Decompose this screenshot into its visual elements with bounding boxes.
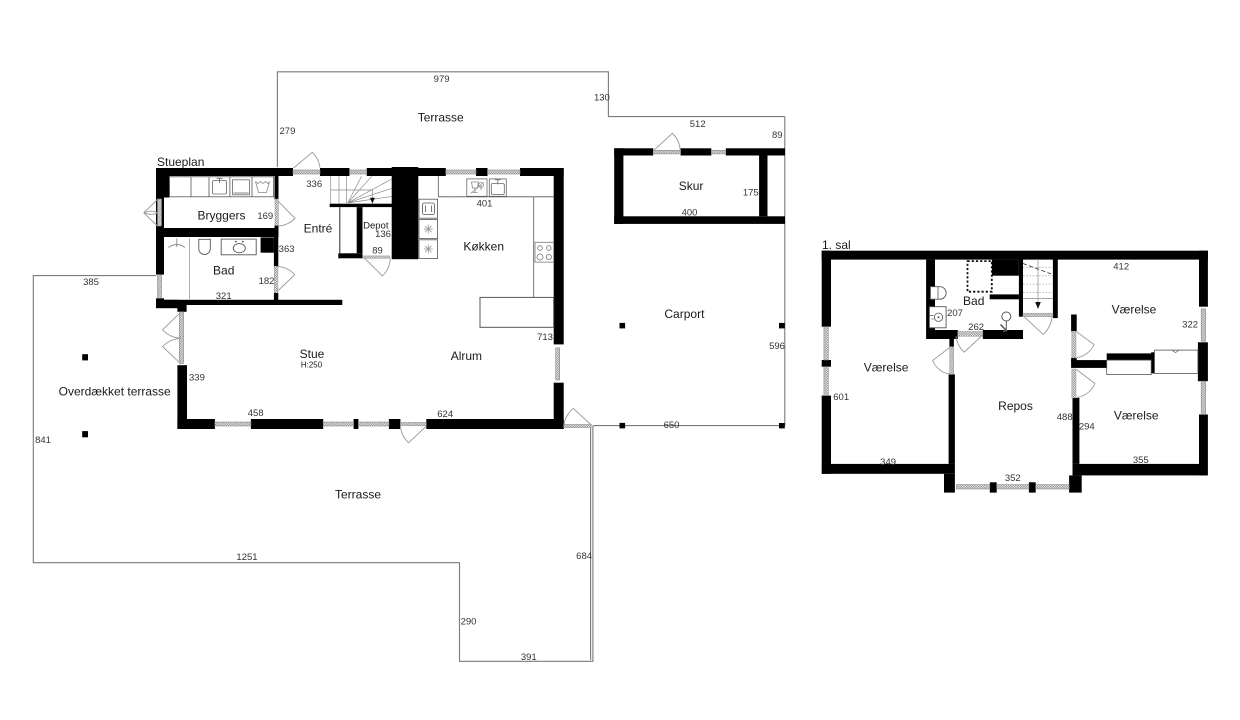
svg-text:290: 290 bbox=[461, 617, 477, 628]
svg-text:1. sal: 1. sal bbox=[822, 238, 851, 252]
svg-text:488: 488 bbox=[1057, 412, 1073, 423]
svg-text:713: 713 bbox=[537, 332, 553, 343]
svg-text:Køkken: Køkken bbox=[463, 240, 504, 254]
svg-text:Bryggers: Bryggers bbox=[197, 209, 245, 223]
svg-text:339: 339 bbox=[189, 373, 205, 384]
svg-text:Terrasse: Terrasse bbox=[335, 488, 381, 502]
svg-text:385: 385 bbox=[83, 277, 99, 288]
svg-text:Værelse: Værelse bbox=[864, 361, 909, 375]
svg-text:279: 279 bbox=[280, 126, 296, 137]
svg-text:89: 89 bbox=[772, 130, 783, 141]
svg-text:458: 458 bbox=[248, 408, 264, 419]
svg-text:596: 596 bbox=[769, 341, 785, 352]
svg-text:363: 363 bbox=[279, 244, 295, 255]
svg-text:Repos: Repos bbox=[998, 399, 1033, 413]
svg-text:130: 130 bbox=[594, 93, 610, 104]
svg-text:262: 262 bbox=[968, 322, 984, 333]
svg-text:400: 400 bbox=[682, 208, 698, 219]
svg-text:601: 601 bbox=[833, 392, 849, 403]
svg-text:175: 175 bbox=[743, 188, 759, 199]
svg-text:349: 349 bbox=[880, 457, 896, 468]
svg-text:Entré: Entré bbox=[304, 222, 333, 236]
svg-text:294: 294 bbox=[1079, 422, 1095, 433]
svg-text:Værelse: Værelse bbox=[1114, 408, 1159, 422]
svg-text:136: 136 bbox=[375, 229, 391, 240]
svg-text:Terrasse: Terrasse bbox=[418, 111, 464, 125]
svg-text:Bad: Bad bbox=[213, 264, 234, 278]
svg-text:650: 650 bbox=[664, 420, 680, 431]
svg-text:355: 355 bbox=[1133, 455, 1149, 466]
svg-text:684: 684 bbox=[576, 551, 592, 562]
svg-text:Stue: Stue bbox=[300, 347, 325, 361]
svg-text:401: 401 bbox=[477, 199, 493, 210]
svg-text:Bad: Bad bbox=[963, 294, 984, 308]
svg-text:H:250: H:250 bbox=[301, 361, 323, 370]
svg-text:182: 182 bbox=[259, 276, 275, 287]
svg-text:Carport: Carport bbox=[664, 307, 705, 321]
svg-text:Overdækket terrasse: Overdækket terrasse bbox=[59, 385, 171, 399]
svg-text:391: 391 bbox=[521, 652, 537, 663]
svg-text:979: 979 bbox=[434, 74, 450, 85]
svg-text:321: 321 bbox=[216, 291, 232, 302]
svg-text:1251: 1251 bbox=[236, 552, 257, 563]
svg-text:Stueplan: Stueplan bbox=[157, 155, 204, 169]
svg-text:336: 336 bbox=[306, 179, 322, 190]
svg-text:Skur: Skur bbox=[679, 179, 704, 193]
svg-text:207: 207 bbox=[947, 308, 963, 319]
svg-text:169: 169 bbox=[257, 211, 273, 222]
svg-text:Værelse: Værelse bbox=[1112, 303, 1157, 317]
svg-text:841: 841 bbox=[35, 435, 51, 446]
svg-text:352: 352 bbox=[1005, 473, 1021, 484]
svg-text:624: 624 bbox=[437, 409, 453, 420]
svg-text:322: 322 bbox=[1182, 319, 1198, 330]
svg-text:Alrum: Alrum bbox=[451, 349, 482, 363]
svg-text:89: 89 bbox=[372, 246, 383, 257]
svg-text:412: 412 bbox=[1113, 262, 1129, 273]
svg-text:512: 512 bbox=[690, 119, 706, 130]
